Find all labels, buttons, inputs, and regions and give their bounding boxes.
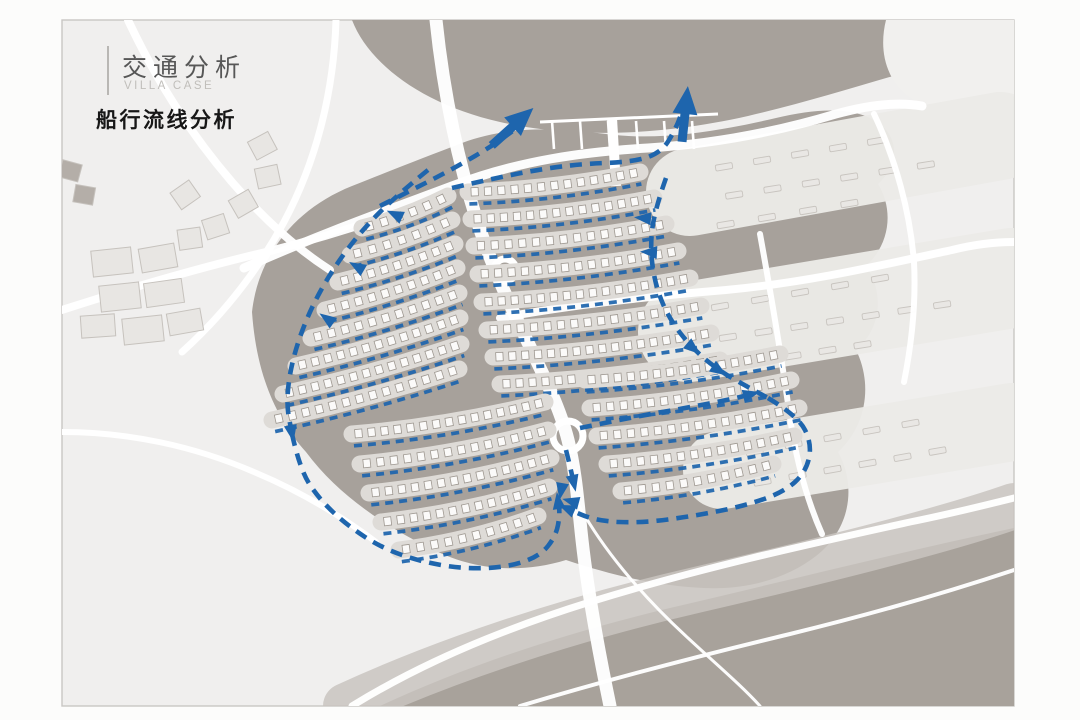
villa-house	[667, 424, 675, 433]
villa-house	[510, 433, 519, 443]
villa-house	[769, 350, 778, 360]
villa-house	[552, 208, 560, 217]
villa-house	[614, 256, 622, 265]
villa-house	[666, 368, 674, 377]
villa-house	[593, 403, 601, 412]
villa-house	[662, 336, 670, 345]
villa-house	[601, 374, 609, 383]
villa-house	[372, 488, 380, 497]
villa-house	[623, 458, 631, 467]
villa-house	[491, 241, 499, 250]
villa-house	[315, 404, 324, 414]
building	[91, 247, 133, 277]
villa-house	[327, 328, 336, 338]
villa-house	[546, 236, 554, 245]
villa-house	[419, 421, 427, 430]
villa-house	[298, 385, 307, 395]
villa-house	[534, 266, 542, 275]
villa-house	[690, 302, 699, 312]
villa-house	[403, 454, 411, 463]
villa-house	[650, 309, 658, 318]
villa-house	[449, 506, 458, 516]
villa-house	[693, 476, 702, 486]
villa-house	[487, 214, 495, 223]
villa-house	[311, 357, 320, 367]
villa-house	[647, 398, 655, 407]
villa-house	[537, 427, 546, 437]
villa-house	[756, 353, 765, 363]
villa-house	[615, 285, 623, 294]
building	[80, 314, 115, 338]
villa-house	[677, 452, 685, 461]
villa-house	[500, 495, 509, 505]
villa-house	[384, 517, 392, 526]
villa-house	[481, 269, 489, 278]
villa-house	[502, 465, 511, 475]
villa-house	[717, 446, 725, 455]
villa-house	[667, 247, 676, 257]
villa-house	[311, 382, 320, 392]
villa-house	[474, 501, 483, 511]
villa-house	[323, 353, 332, 363]
villa-house	[353, 248, 362, 258]
villa-house	[757, 438, 766, 448]
villa-house	[458, 534, 467, 544]
villa-house	[628, 283, 636, 292]
villa-house	[643, 194, 652, 204]
villa-house	[444, 537, 453, 547]
villa-house	[666, 481, 674, 490]
villa-house	[780, 377, 789, 387]
villa-house	[529, 378, 537, 387]
villa-house	[500, 213, 508, 222]
villa-house	[485, 297, 493, 306]
villa-house	[505, 240, 513, 249]
villa-house	[606, 402, 614, 411]
villa-house	[721, 471, 730, 481]
villa-house	[437, 478, 446, 488]
villa-house	[578, 205, 586, 214]
villa-house	[416, 542, 424, 551]
villa-house	[627, 429, 635, 438]
villa-house	[767, 379, 776, 389]
villa-house	[783, 433, 792, 443]
villa-house	[687, 393, 695, 402]
villa-house	[573, 233, 581, 242]
villa-house	[436, 509, 445, 519]
villa-house	[341, 300, 350, 310]
villa-house	[274, 414, 283, 424]
villa-house	[654, 426, 662, 435]
villa-house	[490, 325, 498, 334]
building	[144, 278, 185, 307]
villa-house	[633, 399, 641, 408]
villa-house	[313, 331, 322, 341]
villa-house	[368, 428, 376, 437]
villa-house	[727, 387, 735, 396]
villa-house	[458, 415, 467, 425]
villa-house	[679, 274, 688, 284]
villa-house	[385, 486, 393, 495]
villa-house	[463, 473, 472, 483]
villa-house	[673, 395, 681, 404]
villa-house	[603, 173, 611, 182]
villa-house	[406, 423, 414, 432]
villa-house	[521, 267, 529, 276]
villa-house	[513, 491, 522, 501]
villa-house	[390, 456, 398, 465]
villa-house	[762, 461, 771, 471]
villa-house	[627, 372, 635, 381]
villa-house	[637, 311, 645, 320]
villa-house	[600, 229, 608, 238]
villa-house	[521, 351, 529, 360]
villa-house	[484, 440, 493, 450]
villa-house	[560, 348, 568, 357]
villa-house	[590, 175, 598, 184]
villa-house	[496, 352, 504, 361]
villa-house	[748, 412, 757, 422]
villa-house	[610, 314, 618, 323]
villa-house	[743, 441, 752, 451]
villa-house	[561, 263, 569, 272]
villa-house	[518, 239, 526, 248]
villa-house	[470, 442, 479, 452]
villa-house	[604, 201, 612, 210]
villa-house	[591, 203, 599, 212]
villa-house	[542, 377, 550, 386]
villa-house	[680, 479, 688, 488]
villa-house	[714, 389, 722, 398]
villa-house	[616, 171, 625, 181]
villa-house	[573, 347, 581, 356]
villa-house	[301, 407, 310, 417]
villa-house	[557, 320, 565, 329]
villa-house	[614, 227, 622, 236]
villa-house	[484, 187, 492, 196]
villa-house	[700, 329, 709, 338]
villa-house	[730, 443, 739, 453]
villa-house	[550, 292, 558, 301]
villa-house	[445, 417, 453, 426]
villa-house	[476, 471, 485, 481]
villa-house	[457, 445, 466, 455]
villa-house	[524, 184, 532, 193]
villa-house	[624, 486, 632, 495]
villa-house	[589, 288, 597, 297]
villa-house	[498, 297, 506, 306]
villa-house	[534, 399, 543, 409]
villa-house	[349, 372, 358, 382]
villa-house	[613, 430, 621, 439]
villa-house	[761, 410, 770, 420]
villa-house	[327, 303, 336, 313]
villa-house	[509, 352, 517, 361]
slide-stage: 交通分析 VILLA CASE 船行流线分析	[0, 0, 1080, 720]
villa-house	[563, 291, 571, 300]
villa-house	[328, 401, 337, 411]
villa-house	[775, 407, 784, 417]
villa-house	[483, 410, 492, 420]
villa-house	[430, 540, 439, 550]
villa-house	[564, 179, 572, 188]
villa-house	[731, 358, 740, 367]
villa-house	[663, 453, 671, 462]
villa-house	[376, 457, 384, 466]
villa-house	[450, 476, 459, 486]
villa-house	[398, 484, 406, 493]
villa-house	[560, 235, 568, 244]
villa-house	[614, 373, 622, 382]
villa-house	[679, 366, 687, 375]
villa-house	[653, 369, 661, 378]
villa-house	[423, 511, 431, 520]
villa-house	[341, 324, 350, 334]
villa-house	[703, 448, 711, 457]
villa-house	[526, 211, 534, 220]
villa-house	[547, 349, 555, 358]
villa-house	[524, 295, 532, 304]
villa-house	[323, 378, 332, 388]
villa-house	[340, 275, 349, 285]
villa-house	[397, 515, 405, 524]
villa-house	[494, 269, 502, 278]
villa-house	[610, 459, 618, 468]
villa-house	[650, 455, 658, 464]
villa-house	[628, 225, 636, 234]
villa-house	[508, 268, 516, 277]
site-plan-map	[0, 0, 1080, 720]
villa-house	[393, 425, 401, 434]
villa-house	[637, 339, 645, 348]
villa-house	[627, 254, 635, 263]
building	[99, 282, 141, 312]
villa-house	[497, 186, 505, 195]
villa-house	[617, 199, 625, 208]
villa-house	[537, 294, 545, 303]
villa-house	[516, 379, 524, 388]
villa-house	[587, 231, 595, 240]
villa-house	[735, 415, 743, 424]
villa-house	[410, 513, 418, 522]
villa-house	[570, 319, 578, 328]
villa-house	[584, 318, 592, 327]
villa-house	[690, 450, 698, 459]
villa-house	[708, 419, 716, 428]
villa-house	[640, 371, 648, 380]
villa-house	[511, 296, 519, 305]
villa-house	[402, 544, 410, 553]
villa-house	[770, 435, 779, 445]
villa-house	[707, 474, 716, 484]
villa-house	[638, 484, 646, 493]
villa-house	[417, 452, 425, 461]
villa-house	[524, 430, 533, 440]
villa-house	[666, 277, 675, 286]
villa-house	[548, 264, 556, 273]
villa-house	[497, 437, 506, 447]
villa-house	[514, 462, 523, 472]
villa-house	[511, 185, 519, 194]
villa-house	[655, 220, 664, 230]
villa-house	[550, 181, 558, 190]
building	[254, 164, 281, 189]
villa-house	[576, 290, 584, 299]
villa-house	[521, 402, 530, 412]
villa-house	[539, 210, 547, 219]
villa-house	[472, 530, 481, 540]
villa-house	[530, 323, 538, 332]
villa-house	[630, 197, 639, 207]
villa-house	[568, 375, 576, 384]
villa-house	[503, 379, 511, 388]
villa-house	[477, 241, 485, 250]
villa-house	[430, 450, 438, 459]
villa-house	[641, 281, 649, 290]
villa-house	[640, 427, 648, 436]
villa-house	[534, 350, 542, 359]
villa-house	[444, 447, 453, 457]
villa-house	[743, 355, 752, 365]
villa-house	[471, 187, 479, 196]
villa-house	[677, 305, 685, 314]
villa-house	[565, 207, 573, 216]
villa-house	[611, 342, 619, 351]
villa-house	[692, 364, 700, 373]
building	[177, 227, 203, 250]
villa-house	[734, 468, 743, 478]
villa-house	[624, 341, 632, 350]
villa-house	[624, 313, 632, 322]
villa-house	[620, 401, 628, 410]
villa-house	[537, 182, 545, 191]
villa-house	[721, 417, 729, 426]
villa-house	[411, 483, 419, 492]
villa-house	[336, 375, 345, 385]
villa-house	[380, 426, 388, 435]
villa-house	[694, 421, 702, 430]
villa-house	[629, 168, 638, 178]
villa-house	[577, 177, 585, 186]
villa-house	[489, 468, 498, 478]
villa-house	[544, 322, 552, 331]
villa-house	[496, 407, 505, 417]
villa-house	[424, 480, 432, 489]
villa-house	[598, 344, 606, 353]
villa-house	[660, 396, 668, 405]
villa-house	[527, 458, 536, 468]
villa-house	[363, 459, 371, 468]
villa-house	[487, 498, 496, 508]
villa-house	[597, 316, 605, 325]
villa-house	[298, 360, 307, 370]
villa-house	[700, 391, 708, 400]
villa-house	[532, 237, 540, 246]
villa-house	[588, 260, 596, 269]
villa-house	[748, 464, 757, 474]
villa-house	[461, 504, 470, 514]
villa-house	[555, 376, 563, 385]
villa-house	[513, 212, 521, 221]
villa-house	[602, 286, 610, 295]
villa-house	[637, 456, 645, 465]
villa-house	[503, 325, 511, 334]
villa-house	[355, 429, 363, 438]
villa-house	[681, 423, 689, 432]
villa-house	[336, 350, 345, 360]
villa-house	[600, 431, 608, 440]
villa-house	[649, 337, 657, 346]
villa-house	[474, 214, 482, 223]
building	[73, 184, 96, 205]
building	[122, 315, 164, 345]
villa-house	[355, 394, 364, 404]
villa-house	[342, 397, 351, 407]
villa-house	[652, 483, 660, 492]
villa-house	[588, 375, 596, 384]
villa-house	[509, 405, 518, 415]
villa-house	[574, 261, 582, 270]
villa-house	[432, 419, 440, 428]
villa-house	[586, 345, 594, 354]
villa-house	[517, 324, 525, 333]
villa-house	[471, 413, 480, 423]
villa-house	[601, 258, 609, 267]
